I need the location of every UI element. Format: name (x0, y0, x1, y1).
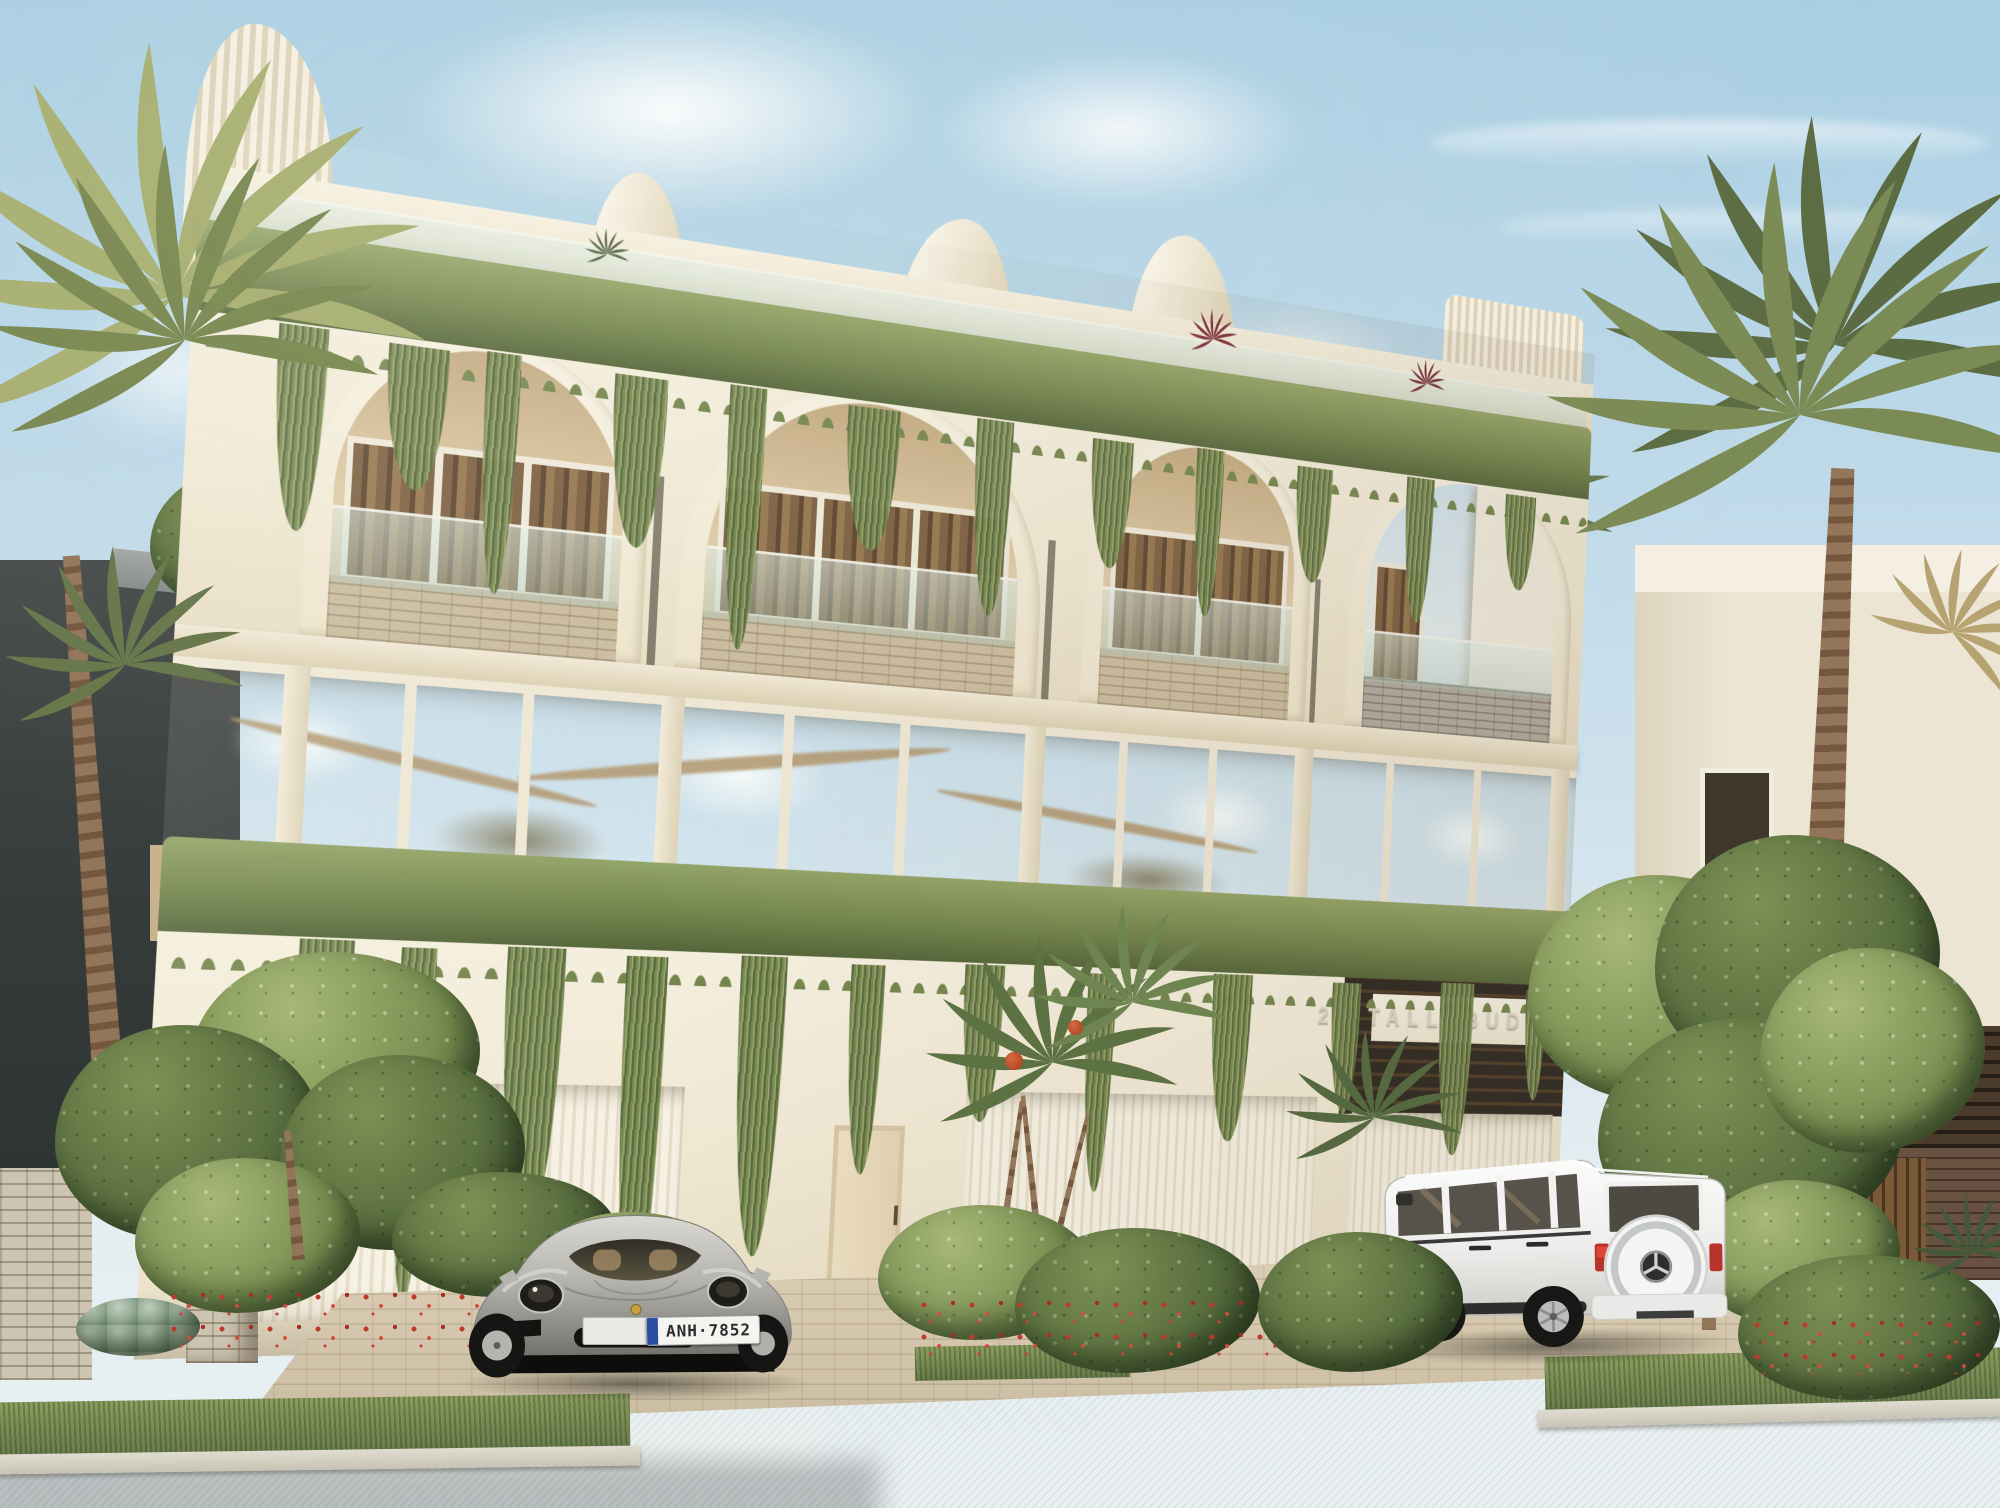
license-plate: ANH·7852 (646, 1315, 760, 1346)
pandanus-crown (1000, 900, 1265, 1105)
roof-plant (576, 223, 637, 284)
red-flower-bed (1748, 1318, 1983, 1374)
roof-bromeliad (1400, 354, 1454, 411)
car-seat (649, 1250, 677, 1271)
cloud (860, 20, 1380, 240)
palm-crown (0, 135, 440, 545)
door-handle (1526, 1242, 1548, 1247)
headlight-glint (533, 1287, 538, 1292)
plate-number: ANH·7852 (658, 1320, 759, 1341)
pandanus-fruit (1005, 1052, 1023, 1070)
pandanus-fruit (1068, 1020, 1083, 1035)
headlight-lens (716, 1282, 740, 1298)
door-handle (1469, 1246, 1491, 1251)
wheel-hub (494, 1342, 501, 1349)
red-flower-bed (915, 1298, 1280, 1360)
car-seat (593, 1250, 621, 1271)
architectural-render-scene: 26 TALLEBUDGERA (0, 0, 2000, 1508)
palm-crown (0, 540, 280, 790)
palmetto-plant (1900, 1190, 2000, 1315)
taillight (1709, 1243, 1722, 1271)
front-splitter (497, 1354, 775, 1374)
hood-crest (631, 1305, 641, 1315)
plate-euro-strip (647, 1318, 658, 1345)
bumper-step (1636, 1310, 1693, 1318)
roof-bromeliad (1179, 302, 1246, 375)
side-mirror (1396, 1193, 1413, 1205)
headlight-lens (528, 1285, 554, 1303)
sports-car (445, 1158, 825, 1406)
